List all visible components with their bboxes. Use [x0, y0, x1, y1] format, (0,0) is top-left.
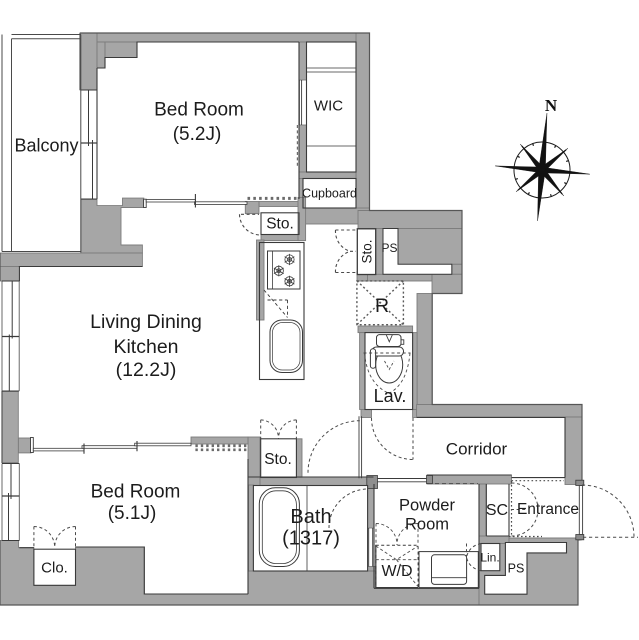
svg-text:Sto.: Sto. — [266, 216, 294, 233]
svg-text:PS: PS — [381, 241, 397, 255]
svg-text:Bed Room: Bed Room — [154, 100, 244, 121]
svg-text:PS: PS — [508, 562, 525, 576]
svg-text:Powder: Powder — [399, 497, 455, 515]
svg-text:Entrance: Entrance — [517, 501, 579, 518]
svg-text:Corridor: Corridor — [446, 440, 508, 459]
svg-text:Cupboard: Cupboard — [302, 187, 357, 201]
svg-text:Sto.: Sto. — [359, 239, 374, 263]
svg-text:Bath: Bath — [290, 506, 331, 528]
svg-text:Lav.: Lav. — [374, 386, 407, 406]
svg-text:N: N — [545, 96, 558, 115]
svg-text:W/D: W/D — [381, 563, 412, 580]
svg-text:(5.2J): (5.2J) — [173, 124, 222, 145]
svg-text:SC: SC — [486, 502, 508, 519]
svg-text:Lin.: Lin. — [480, 551, 499, 565]
svg-text:Clo.: Clo. — [41, 560, 68, 577]
svg-text:(12.2J): (12.2J) — [116, 359, 177, 381]
svg-text:(1317): (1317) — [282, 528, 340, 550]
svg-text:Room: Room — [405, 516, 449, 534]
svg-text:(5.1J): (5.1J) — [108, 503, 157, 524]
svg-text:R: R — [375, 295, 389, 317]
svg-text:Bed Room: Bed Room — [91, 482, 181, 503]
svg-text:Balcony: Balcony — [14, 136, 78, 156]
svg-text:Kitchen: Kitchen — [113, 336, 178, 358]
svg-text:Sto.: Sto. — [264, 451, 292, 468]
svg-text:WIC: WIC — [314, 98, 343, 115]
svg-text:Living Dining: Living Dining — [90, 311, 202, 333]
